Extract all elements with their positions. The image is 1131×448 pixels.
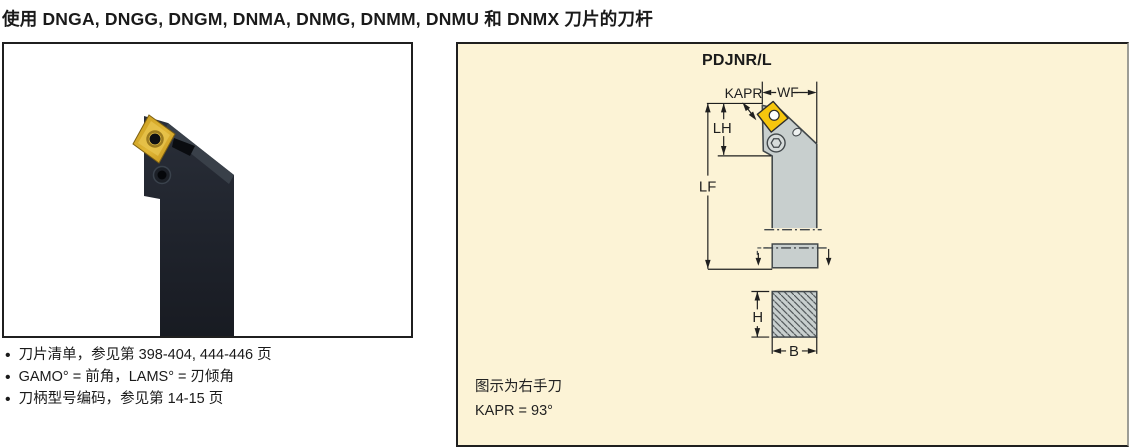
diagram-caption-line1: 图示为右手刀 — [475, 375, 562, 399]
diagram-caption: 图示为右手刀 KAPR = 93° — [475, 375, 562, 423]
note-text: 刀片清单，参见第 398-404, 444-446 页 — [19, 347, 272, 363]
tool-photo — [4, 44, 411, 336]
lh-arrow-down — [721, 146, 727, 155]
note-item: GAMO° = 前角，LAMS° = 刃倾角 — [5, 366, 272, 388]
diagram-caption-line2: KAPR = 93° — [475, 399, 562, 423]
dim-label-b: B — [789, 344, 799, 360]
lf-arrow-up — [705, 103, 711, 112]
diagram-insert-hole — [769, 110, 779, 120]
note-text: 刀柄型号编码，参见第 14-15 页 — [19, 391, 224, 407]
dim-label-h: H — [752, 310, 763, 326]
datum-arrow-right — [826, 258, 832, 266]
cross-section-hatch — [772, 292, 817, 338]
dim-label-kapr: KAPR — [725, 85, 763, 101]
dim-label-lh: LH — [713, 121, 732, 137]
datum-arrow-left — [756, 258, 762, 266]
tool-photo-box — [2, 42, 413, 338]
lh-arrow-up — [721, 103, 727, 112]
kapr-arrowhead-2 — [749, 112, 757, 121]
hidden-corner-line — [757, 248, 772, 255]
photo-screw-socket — [158, 171, 167, 180]
wf-arrow-right — [808, 90, 817, 96]
dim-label-lf: LF — [699, 180, 716, 196]
photo-insert-hole — [150, 134, 161, 145]
diagram-panel: PDJNR/L — [456, 42, 1129, 447]
b-arrow-left — [772, 348, 781, 354]
page-title: 使用 DNGA, DNGG, DNGM, DNMA, DNMG, DNMM, D… — [2, 6, 1002, 31]
b-arrow-right — [808, 348, 817, 354]
h-arrow-down — [755, 328, 761, 337]
diagram-screw-outer — [767, 134, 785, 152]
note-text: GAMO° = 前角，LAMS° = 刃倾角 — [19, 369, 234, 385]
lf-arrow-down — [705, 260, 711, 269]
note-item: 刀片清单，参见第 398-404, 444-446 页 — [5, 344, 272, 366]
wf-arrow-left — [762, 90, 771, 96]
dim-label-wf: WF — [777, 84, 799, 100]
h-arrow-up — [755, 292, 761, 301]
notes-list: 刀片清单，参见第 398-404, 444-446 页 GAMO° = 前角，L… — [5, 344, 272, 410]
note-item: 刀柄型号编码，参见第 14-15 页 — [5, 388, 272, 410]
